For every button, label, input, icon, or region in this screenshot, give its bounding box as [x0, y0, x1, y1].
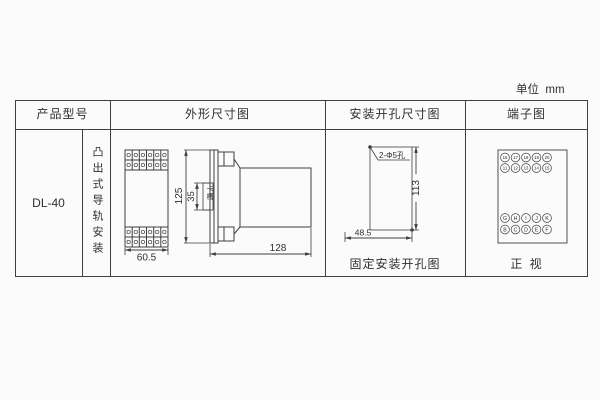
dim-panel-height-value: 125 [174, 187, 185, 204]
terminal-label: C [514, 228, 518, 234]
terminal-label: 17 [513, 155, 518, 160]
terminal-outline-rect [498, 150, 567, 243]
terminal-label: E [535, 228, 539, 234]
datasheet-page: 单位 mm 产品型号 外形尺寸图 安装开孔尺寸图 端子图 DL-40 凸出式导轨… [0, 0, 600, 400]
hole-note-value: 2-Φ5孔 [379, 151, 405, 160]
header-product-model: 产品型号 [15, 100, 110, 129]
terminal-label: I [525, 216, 526, 222]
terminal-caption: 正 视 [510, 256, 543, 271]
unit-note: 单位 mm [516, 81, 565, 97]
dim-slot-height-value: 35 [186, 191, 197, 202]
terminal-label: 11 [503, 166, 508, 171]
terminal-label: 20 [545, 155, 550, 160]
dim-front-width-value: 60.5 [137, 253, 157, 264]
terminal-label: G [503, 216, 507, 222]
terminal-label: 16 [503, 155, 508, 160]
terminal-label: K [545, 216, 549, 222]
dim-front-width: 60.5 [125, 248, 168, 264]
model-subdivider [82, 129, 83, 277]
hole-note-leader: 2-Φ5孔 [370, 147, 410, 160]
terminal-label: H [514, 216, 518, 222]
header-outline-dimensions: 外形尺寸图 [110, 100, 325, 129]
terminal-label: B [503, 228, 507, 234]
product-model: DL-40 [15, 196, 82, 210]
dim-horizontal-spacing-value: 48.5 [355, 228, 372, 238]
terminal-label: F [545, 228, 548, 234]
terminal-label: 14 [534, 166, 539, 171]
header-install-hole: 安装开孔尺寸图 [325, 100, 465, 129]
slot-label: 卡槽 [204, 185, 214, 209]
dim-depth-value: 128 [270, 243, 287, 254]
dim-depth: 128 [210, 228, 311, 257]
header-terminal-diagram: 端子图 [465, 100, 588, 129]
terminal-label: 15 [545, 166, 550, 171]
terminal-diagram: 16 17 18 19 20 11 12 13 14 15 G H I J K … [465, 129, 588, 278]
terminal-group-bottom: G H I J K B C D E F [501, 214, 552, 234]
terminal-label: 12 [513, 166, 518, 171]
install-caption: 固定安装开孔图 [349, 256, 440, 271]
outline-drawing: 60.5 125 35 128 [110, 129, 325, 278]
dim-vertical-spacing: 113 [411, 147, 422, 230]
terminal-label: 19 [534, 155, 539, 160]
mount-type-vertical-label: 凸出式导轨安装 [89, 146, 105, 270]
terminal-label: D [524, 228, 528, 234]
terminal-label: J [535, 216, 538, 222]
side-view [203, 150, 311, 243]
terminal-group-top: 16 17 18 19 20 11 12 13 14 15 [501, 153, 552, 172]
front-view [125, 150, 168, 247]
install-hole-drawing: 2-Φ5孔 113 48.5 固定安装开孔图 [325, 129, 465, 278]
terminal-label: 18 [524, 155, 529, 160]
dim-vertical-spacing-value: 113 [411, 180, 422, 196]
terminal-label: 13 [524, 166, 529, 171]
